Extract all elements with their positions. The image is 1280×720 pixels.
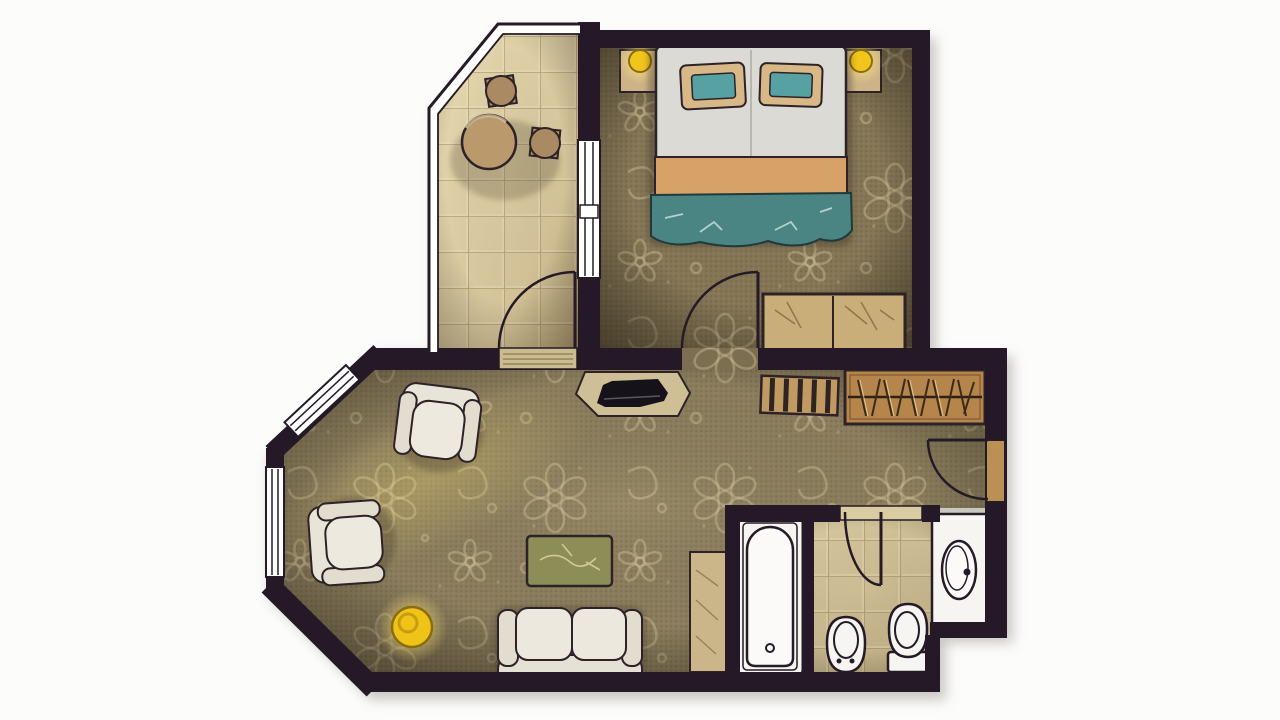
- bathroom-top-wall-left: [725, 505, 840, 522]
- bathroom-notch-wall-v: [925, 635, 940, 692]
- bedroom-top-wall: [583, 30, 930, 48]
- bedside-lamp-left: [629, 50, 651, 72]
- bay-window-left: [266, 467, 284, 577]
- coffee-table: [527, 536, 612, 586]
- bedside-lamp-right: [850, 50, 872, 72]
- stool-top: [485, 75, 517, 107]
- round-table: [462, 115, 516, 169]
- sink-vanity: [932, 514, 987, 625]
- tv-console: [576, 372, 690, 416]
- open-wardrobe: [845, 370, 985, 424]
- floor-plan-drawing: [0, 0, 1280, 720]
- floor-lamp: [376, 591, 448, 663]
- stool-right: [530, 128, 561, 159]
- bathroom-top-wall-right: [922, 505, 940, 522]
- pillow-right: [759, 63, 822, 107]
- bidet: [827, 617, 865, 672]
- bed-runner: [655, 157, 847, 195]
- bottom-wall: [362, 672, 940, 692]
- bathtub: [737, 517, 803, 676]
- bathroom-notch-wall-h: [930, 622, 1007, 638]
- bathroom-left-wall: [725, 505, 740, 692]
- luggage-rack: [760, 376, 838, 416]
- toilet: [888, 604, 930, 672]
- balcony-bedroom-window: [578, 140, 600, 278]
- storage-bench: [763, 294, 905, 350]
- bedroom-right-wall: [912, 30, 930, 348]
- pillow-left: [680, 62, 746, 109]
- floor-plan-image: [0, 0, 1280, 720]
- double-bed: [648, 46, 852, 246]
- bed-blanket: [651, 193, 852, 246]
- side-cabinet: [690, 552, 726, 672]
